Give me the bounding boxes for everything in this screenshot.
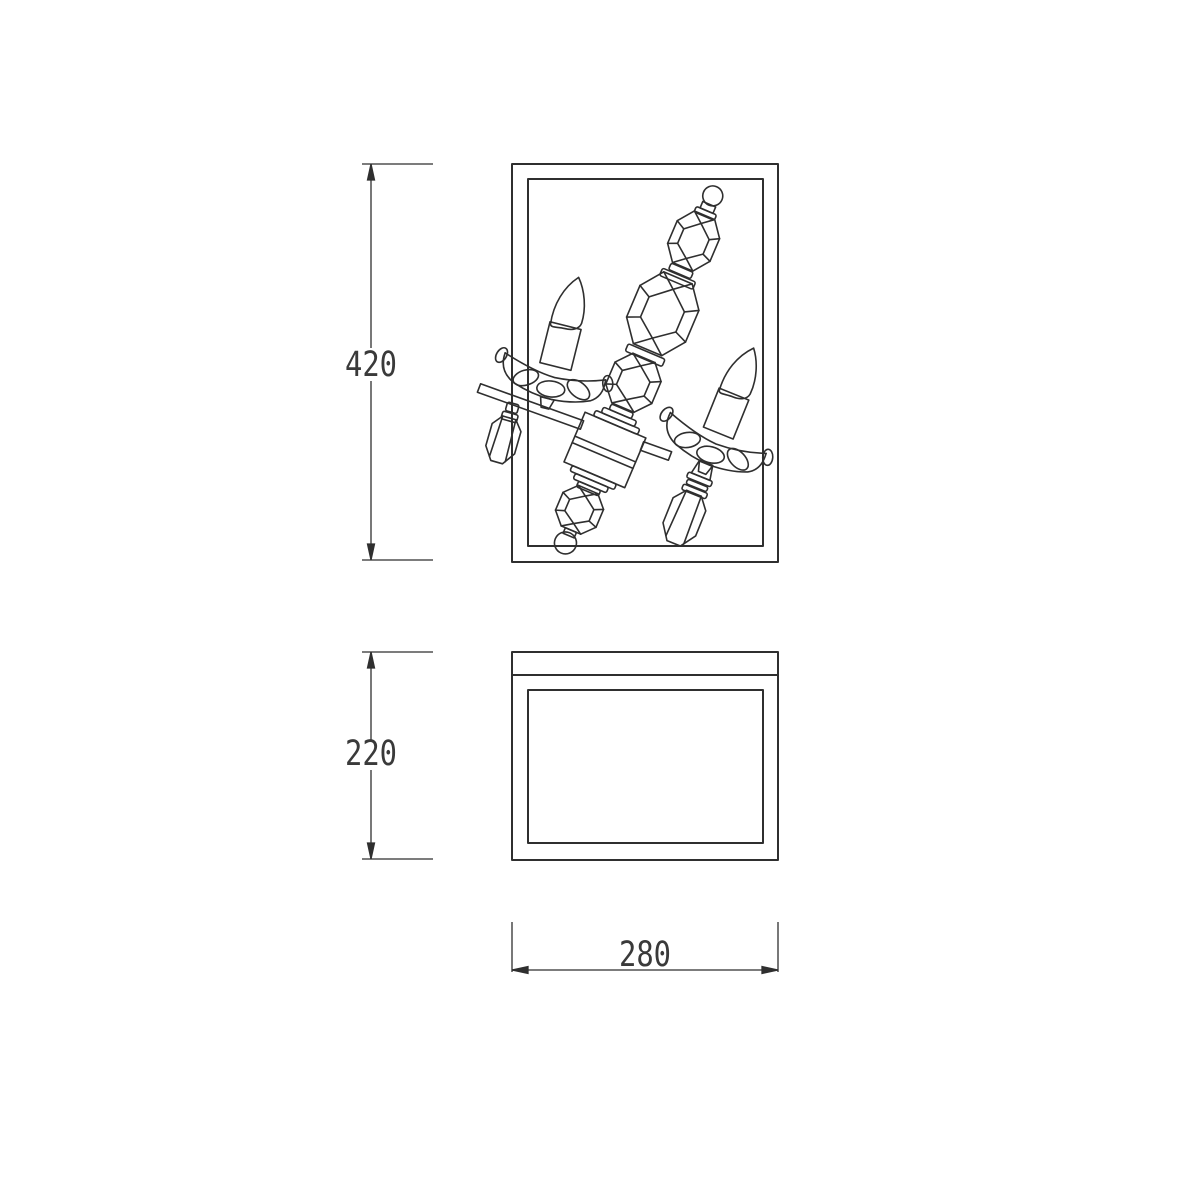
right-candle-assembly <box>616 324 810 566</box>
dimension-label-depth: 220 <box>345 734 397 774</box>
dimension-label-width: 280 <box>619 935 671 975</box>
top-view-outer-frame <box>512 652 778 860</box>
left-candle-assembly <box>485 262 638 423</box>
top-view-inner-frame <box>528 690 763 843</box>
crystal-bead-column <box>531 174 747 566</box>
front-view-frame <box>512 164 778 562</box>
central-hub-body <box>564 412 646 487</box>
technical-drawing-canvas: 420 220 280 <box>0 0 1200 1200</box>
left-crystal-pendant <box>482 399 528 466</box>
arrowhead-up <box>368 652 375 668</box>
arrowhead-down <box>368 544 375 560</box>
arrowhead-up <box>368 164 375 180</box>
front-view-outer-frame <box>512 164 778 562</box>
technical-drawing-page: 420 220 280 <box>0 0 1200 1200</box>
front-view-inner-frame <box>528 179 763 546</box>
arrowhead-left <box>512 967 528 974</box>
top-view <box>512 652 778 860</box>
dimension-label-height: 420 <box>345 345 397 385</box>
arrowhead-right <box>762 967 778 974</box>
front-view <box>477 164 810 567</box>
right-crystal-pendant <box>657 487 710 550</box>
arrowhead-down <box>368 843 375 859</box>
